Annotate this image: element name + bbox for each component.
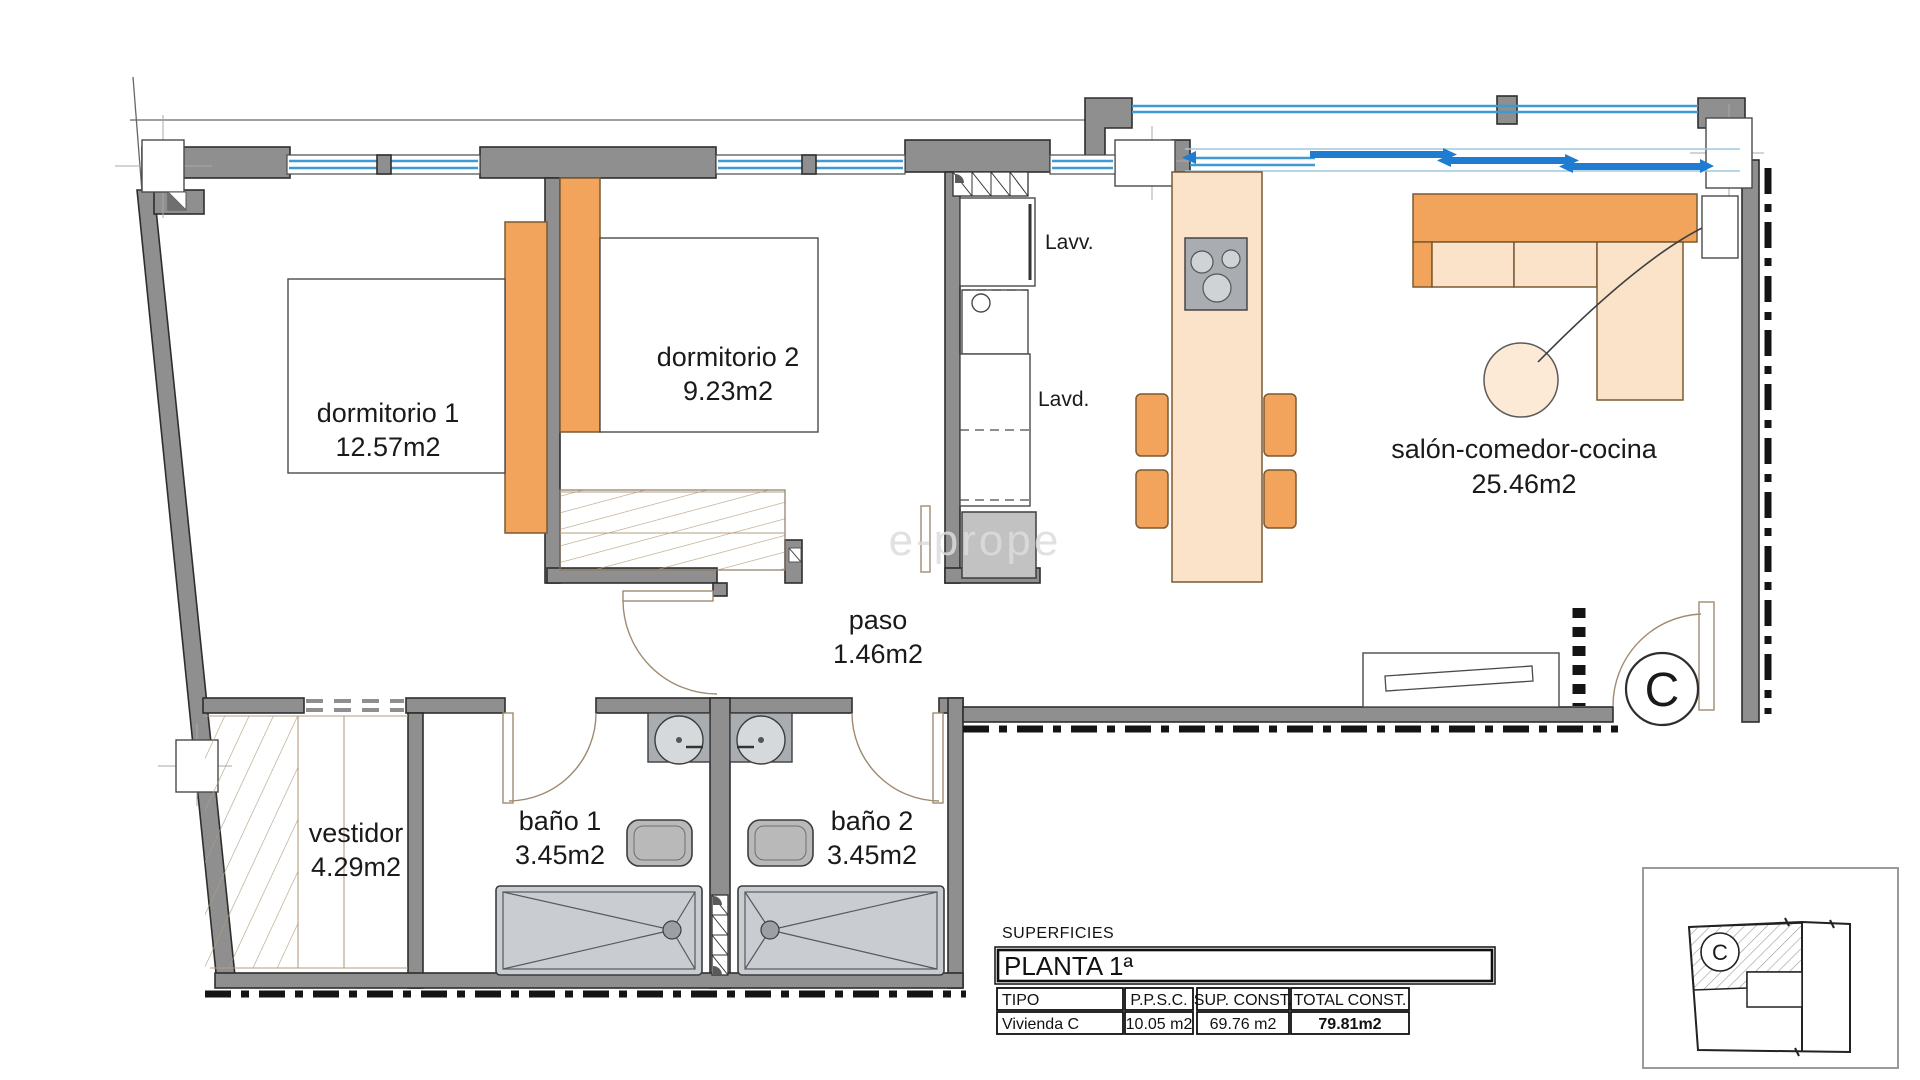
drain-icon [761, 921, 779, 939]
label-salon-area: 25.46m2 [1471, 469, 1576, 499]
label-dormitorio2: dormitorio 2 [657, 342, 800, 372]
label-dormitorio1-area: 12.57m2 [335, 432, 440, 462]
col-total-const: TOTAL CONST. [1294, 992, 1407, 1009]
pillar-top-left [142, 140, 184, 192]
window-kitchen [1050, 155, 1115, 174]
cell-ppsc: 10.05 m2 [1126, 1016, 1193, 1033]
wardrobe-strip-dorm2 [560, 178, 600, 432]
wall-right [1742, 160, 1759, 722]
key-plan: C [1643, 868, 1898, 1068]
ac-unit-icon [1702, 196, 1738, 258]
wardrobe-strip-dorm1 [505, 222, 547, 533]
door-leaf-bedrooms [623, 591, 713, 601]
label-lavv: Lavv. [1045, 231, 1094, 254]
toilet-icon [748, 820, 813, 866]
label-dormitorio2-area: 9.23m2 [683, 376, 773, 406]
dormitorio2-furniture [560, 178, 818, 570]
toilet-icon [627, 820, 692, 866]
watermark-text: e-prope [889, 516, 1062, 565]
shower-bath1 [496, 886, 702, 975]
label-paso-area: 1.46m2 [833, 639, 923, 669]
col-tipo: TIPO [1002, 992, 1039, 1009]
sofa-cushion [1432, 242, 1514, 287]
wall-salon-bottom [963, 707, 1613, 722]
closet-vestidor [205, 716, 298, 968]
island-counter [1172, 172, 1262, 582]
door-leaf-bath1 [503, 713, 513, 803]
label-bano1: baño 1 [519, 806, 602, 836]
chair [1136, 394, 1168, 456]
table-title: SUPERFICIES [1002, 925, 1114, 942]
chair [1264, 394, 1296, 456]
pillar-top-right [1706, 118, 1752, 188]
closet-dorm2 [560, 490, 785, 570]
kitchen-island [1136, 172, 1296, 582]
label-paso: paso [849, 605, 908, 635]
entrance-letter: C [1645, 664, 1680, 717]
sofa-arm [1413, 242, 1432, 287]
sofa-back [1413, 194, 1697, 242]
terrace-mullion [1497, 96, 1517, 124]
shaft-bathrooms [712, 895, 728, 975]
label-bano2-area: 3.45m2 [827, 840, 917, 870]
cell-total-const: 79.81m2 [1318, 1016, 1381, 1033]
pillar-top-middle [1115, 140, 1175, 186]
sofa-cushion [1514, 242, 1597, 287]
drain-icon [663, 921, 681, 939]
label-salon: salón-comedor-cocina [1391, 434, 1658, 464]
entrance-marker: C [1626, 653, 1698, 725]
floor-plan: C e-prope dormitorio 1 12.57m2 dormitori… [0, 0, 1920, 1080]
dormitorio1-furniture [288, 222, 547, 533]
label-lavd: Lavd. [1038, 388, 1089, 411]
label-vestidor-area: 4.29m2 [311, 852, 401, 882]
sofa-chaise [1597, 242, 1683, 400]
col-sup-const: SUP. CONST. [1194, 992, 1292, 1009]
label-dormitorio1: dormitorio 1 [317, 398, 460, 428]
label-vestidor: vestidor [309, 818, 404, 848]
superficies-table: SUPERFICIES PLANTA 1ª TIPO P.P.S.C. SUP.… [995, 925, 1495, 1034]
washing-machine-icon [962, 290, 1028, 354]
entrance-door-leaf [1699, 602, 1714, 710]
keyplan-letter: C [1712, 940, 1728, 965]
sliding-door [1182, 148, 1740, 173]
cabinet-lavv [960, 198, 1035, 286]
shower-bath2 [738, 886, 944, 975]
chair [1136, 470, 1168, 528]
door-leaf-bath2 [933, 713, 943, 803]
chair [1264, 470, 1296, 528]
cell-sup-const: 69.76 m2 [1210, 1016, 1277, 1033]
label-bano1-area: 3.45m2 [515, 840, 605, 870]
cell-tipo: Vivienda C [1002, 1016, 1079, 1033]
col-ppsc: P.P.S.C. [1130, 992, 1187, 1009]
shaft-top [953, 172, 1028, 196]
dashed-opening [306, 701, 404, 710]
table-floor-header: PLANTA 1ª [1004, 951, 1133, 981]
label-bano2: baño 2 [831, 806, 914, 836]
